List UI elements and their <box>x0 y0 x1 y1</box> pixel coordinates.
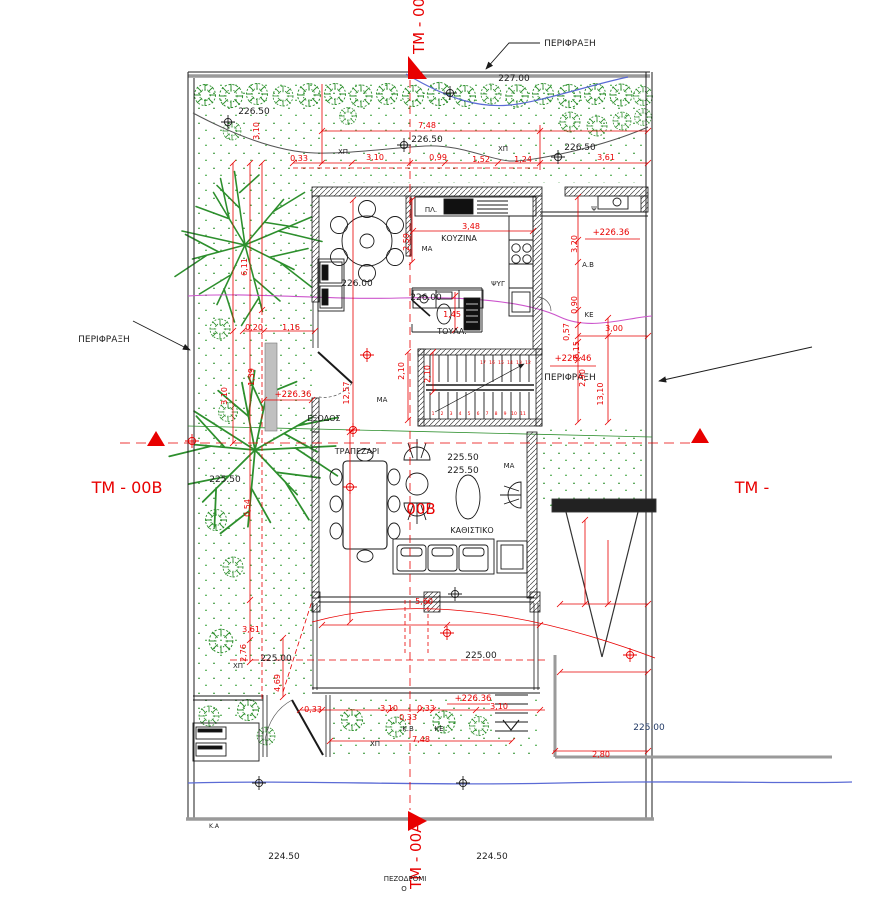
dimension_labels-31: 3,10 <box>380 704 398 713</box>
fence-right: ΠΕΡΙΦΡΑΞΗ <box>544 373 596 383</box>
stair_numbers-2: 3 <box>450 411 453 417</box>
dimension_labels-7: 3,48 <box>462 222 480 231</box>
dimension_labels-18: 1,45 <box>443 310 461 319</box>
leader-fence-left <box>133 321 190 350</box>
equipment_labels-12: ΧΠ <box>498 145 508 153</box>
dimension_labels-6: 3,61 <box>597 153 615 162</box>
dimension_labels-22: 6,15 <box>572 341 581 359</box>
stair_numbers-0: 1 <box>432 411 435 417</box>
toilet: ΤΟΥΑΛ. <box>436 327 467 336</box>
stair_numbers-4: 5 <box>468 411 471 417</box>
dimension_labels-19: 3,20 <box>570 235 579 253</box>
equipment_labels-3: Α.Β <box>582 261 594 269</box>
elevation_labels-6: 225.50 <box>209 475 241 485</box>
dimension_labels-17: 2,10 <box>423 365 432 383</box>
equipment_labels-14: ΧΠ <box>370 740 380 748</box>
dimension_labels-30: 0,33 <box>304 705 322 714</box>
elevation_labels-12: 224.50 <box>268 852 300 862</box>
dimension_labels-26: 0,54 <box>243 499 252 517</box>
equipment_labels-1: ΨΥΓ <box>491 280 505 288</box>
equipment_labels-7: Κ.Α <box>209 823 220 830</box>
dimension_labels-13: 1,39 <box>247 368 256 386</box>
exit: ΕΞΟΔΟΣ <box>307 414 340 423</box>
dimension_labels-3: 0,99 <box>429 153 447 162</box>
dimension_labels-4: 1,52 <box>472 155 490 164</box>
tm-right: TM - <box>734 478 769 497</box>
sidewalk-2: Ο <box>401 885 407 893</box>
dimension_labels-2: 3,10 <box>366 153 384 162</box>
elevation_labels-8: 225.50 <box>447 466 479 476</box>
ramp-right <box>552 499 656 657</box>
stair_numbers-9: 10 <box>511 411 517 417</box>
equipment_labels-10: ΜΑ <box>504 462 515 470</box>
red_elevation_labels-3: +226.36 <box>455 694 492 704</box>
stair_numbers-14: 15 <box>498 360 504 366</box>
dimension_labels-16: 2,10 <box>397 362 406 380</box>
elevation_labels-1: 226.50 <box>238 107 270 117</box>
stair_numbers-5: 6 <box>477 411 480 417</box>
stair_numbers-6: 7 <box>486 411 489 417</box>
elevation_labels-4: 226.00 <box>341 279 373 289</box>
stair_numbers-13: 14 <box>507 360 513 366</box>
dimension_labels-15: 12,57 <box>342 382 351 405</box>
red_elevation_labels-1: +226.36 <box>593 228 630 238</box>
tm-00a-top: TM - 00A <box>410 0 428 55</box>
contour-blue-bottom <box>188 782 852 784</box>
stair_numbers-10: 11 <box>520 411 526 417</box>
dimension_labels-0: 7,48 <box>418 121 436 130</box>
equipment_labels-2: Ψ <box>591 205 597 213</box>
elevation_labels-0: 227.00 <box>498 74 530 84</box>
dimension_labels-23: 2,90 <box>578 369 587 387</box>
dimension_labels-24: 13,10 <box>596 383 605 406</box>
dimension_labels-5: 1,24 <box>514 155 532 164</box>
dimension_labels-29: 4,69 <box>273 674 282 692</box>
equipment_labels-11: ΧΠ <box>338 148 348 156</box>
living: ΚΑΘΙΣΤΙΚΟ <box>450 526 493 535</box>
elevation_labels-3: 226.50 <box>564 143 596 153</box>
equipment_labels-8: ΜΑ <box>422 245 433 253</box>
stair_numbers-11: 12 <box>525 360 531 366</box>
elevation_labels-7: 225.50 <box>447 453 479 463</box>
dining: ΤΡΑΠΕΖΑΡΙ <box>334 447 379 456</box>
dimension_labels-14: 3,10 <box>220 387 229 405</box>
dimension_labels-9: 3,10 <box>252 122 261 140</box>
equipment_labels-13: ΧΠ <box>233 662 243 670</box>
fence-left: ΠΕΡΙΦΡΑΞΗ <box>78 335 130 345</box>
plan-svg: TM - 00ATM - 00BTM -TM - 00A00ΒΠΕΡΙΦΡΑΞΗ… <box>0 0 876 899</box>
equipment_labels-0: ΠΛ. <box>425 206 437 214</box>
kitchen: ΚΟΥΖΙΝΑ <box>441 234 477 243</box>
dimension_labels-1: 0,33 <box>290 154 308 163</box>
dimension_labels-8: 2,59 <box>402 233 411 251</box>
dimension_labels-27: 3,61 <box>242 625 260 634</box>
dimension_labels-20: 0,90 <box>570 296 579 314</box>
elevation_labels-11: 225.00 <box>633 723 665 733</box>
retaining-wall <box>265 343 277 431</box>
dimension_labels-10: 6,11 <box>240 258 249 276</box>
stair_numbers-12: 13 <box>516 360 522 366</box>
tm-00b-left: TM - 00B <box>91 478 163 497</box>
sidewalk-1: ΠΕΖΟΔΡΟΜΙ <box>384 875 427 883</box>
dimension_labels-33: 0,33 <box>399 713 417 722</box>
dimension_labels-35: 7,48 <box>412 735 430 744</box>
equipment_labels-9: ΜΑ <box>377 396 388 404</box>
elevation_labels-5: 226.00 <box>410 293 442 303</box>
leader-fence-right <box>659 347 812 381</box>
site-plan-drawing: TM - 00ATM - 00BTM -TM - 00A00ΒΠΕΡΙΦΡΑΞΗ… <box>0 0 876 899</box>
dimension_labels-37: 2,80 <box>592 750 610 759</box>
elevation_labels-10: 225.00 <box>465 651 497 661</box>
equipment_labels-6: Κ.Β <box>402 725 414 733</box>
dimension_labels-28: 2,76 <box>239 644 248 662</box>
elevation_labels-2: 226.50 <box>411 135 443 145</box>
dimension_labels-25: 3,00 <box>605 324 623 333</box>
stair_numbers-1: 2 <box>441 411 444 417</box>
equipment_labels-5: ΚΕ <box>434 725 443 733</box>
equipment_labels-4: ΚΕ <box>584 311 593 319</box>
elevation_labels-9: 225.00 <box>260 654 292 664</box>
stair_numbers-7: 8 <box>495 411 498 417</box>
dimension_labels-11: 0,20 <box>245 323 263 332</box>
red_elevation_labels-0: +226.36 <box>275 390 312 400</box>
tm-00b-center: 00Β <box>406 500 435 518</box>
stair_numbers-15: 16 <box>489 360 495 366</box>
dimension_labels-12: 1,16 <box>282 323 300 332</box>
fence-top: ΠΕΡΙΦΡΑΞΗ <box>544 39 596 49</box>
dimension_labels-21: 0,57 <box>562 323 571 341</box>
stair_numbers-8: 9 <box>504 411 507 417</box>
stair_numbers-16: 17 <box>480 360 486 366</box>
leader-fence-top <box>486 43 540 69</box>
elevation_labels-13: 224.50 <box>476 852 508 862</box>
dimension_labels-36: 5,60 <box>415 597 433 606</box>
stair_numbers-3: 4 <box>459 411 462 417</box>
dimension_labels-32: 0,33 <box>417 704 435 713</box>
dimension_labels-34: 3,10 <box>490 702 508 711</box>
